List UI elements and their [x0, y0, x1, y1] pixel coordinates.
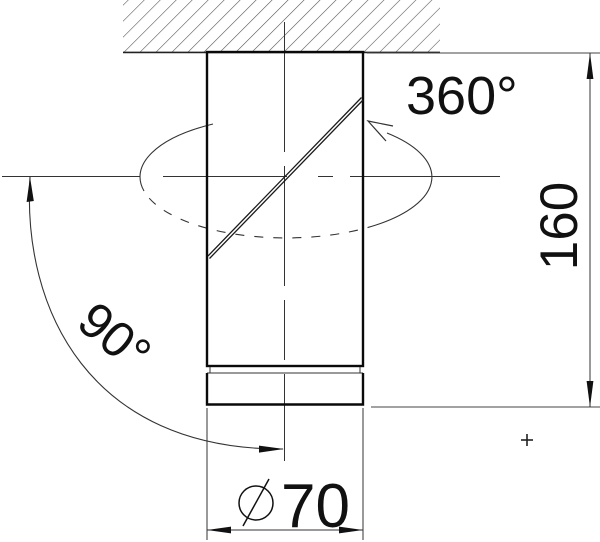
ceiling-hatch: [123, 0, 440, 52]
rotation-dimension-label: 360°: [406, 66, 518, 126]
technical-drawing-page: 160 70 360° 90°: [0, 0, 600, 542]
diameter-dimension-label: 70: [281, 472, 350, 541]
ceiling-hatch-area: [123, 0, 440, 52]
height-dimension-label: 160: [530, 182, 589, 270]
technical-drawing-canvas: 160 70 360° 90°: [0, 0, 600, 542]
